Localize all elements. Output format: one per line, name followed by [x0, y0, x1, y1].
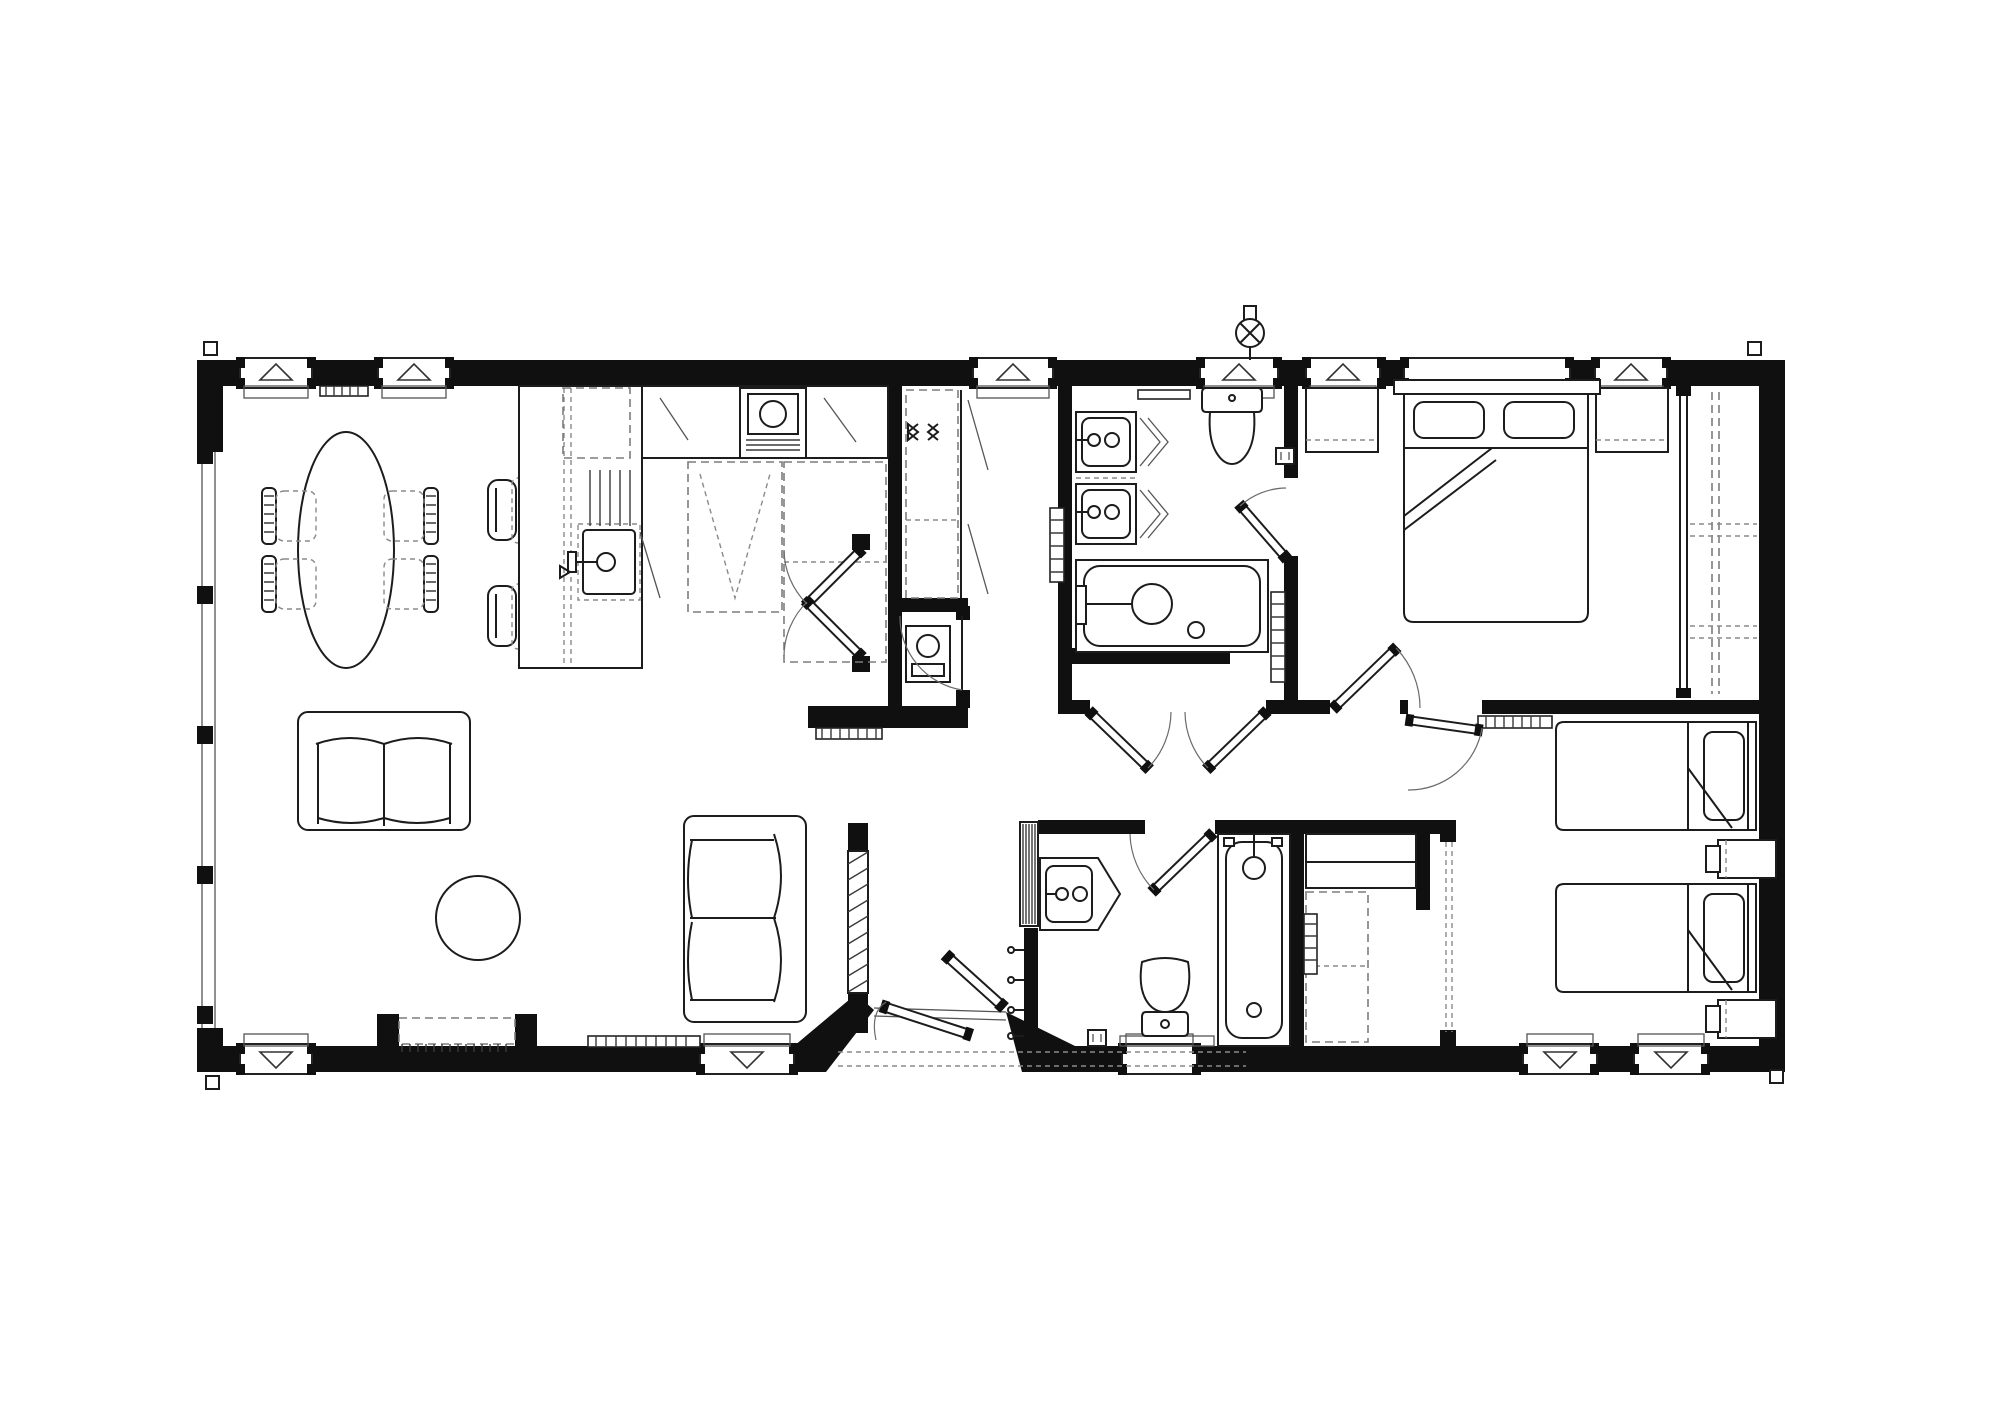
- wall-bottom: [537, 1046, 700, 1072]
- window-cap: [789, 1064, 798, 1075]
- wall-bottom: [377, 1046, 537, 1072]
- window-frame: [1595, 358, 1667, 388]
- wall-top: [1278, 360, 1306, 386]
- window-cap: [445, 357, 454, 368]
- window-frame: [240, 358, 312, 388]
- towel-rail: [1138, 390, 1190, 399]
- window-cap: [969, 357, 978, 368]
- floor-plan-drawing: [0, 0, 2000, 1414]
- window-frame: [240, 1044, 312, 1074]
- pillow: [1504, 402, 1574, 438]
- radiator: [320, 386, 368, 396]
- window-cap: [1519, 1064, 1528, 1075]
- single-bed: [1556, 884, 1756, 992]
- window-frame: [1200, 358, 1278, 388]
- wall-bottom: [1708, 1046, 1785, 1072]
- sofa-two-seat-north: [298, 712, 470, 830]
- towel-radiator-body: [1050, 508, 1064, 582]
- feature-partition: [848, 851, 868, 993]
- window-cap: [307, 357, 316, 368]
- cooker-oven: [740, 388, 806, 458]
- towel-radiator: [1304, 914, 1317, 974]
- window-frame: [973, 358, 1053, 388]
- downpipe-icon: [204, 342, 217, 355]
- shaver-socket: [1276, 448, 1294, 464]
- pillow: [1414, 402, 1484, 438]
- wall-storage-stub: [1416, 834, 1430, 910]
- window-cap: [696, 1064, 705, 1075]
- window-cap: [236, 357, 245, 368]
- wall-master-south: [1290, 700, 1330, 714]
- window-frame: [1122, 1044, 1197, 1074]
- tap-head: [597, 553, 615, 571]
- headboard: [1394, 380, 1600, 394]
- window-cap: [1662, 357, 1671, 368]
- coffee-table: [436, 876, 520, 960]
- window-cap: [1196, 357, 1205, 368]
- dining-table: [298, 432, 394, 668]
- wall-corridor-south: [1215, 820, 1446, 834]
- downpipe-icon: [206, 1076, 219, 1089]
- wall-left-top: [197, 360, 223, 452]
- wall-master-south: [1482, 700, 1759, 714]
- window-frame: [1634, 1044, 1708, 1074]
- wall-bathroom-east: [1284, 556, 1298, 714]
- wall-kitchen-east: [888, 386, 902, 727]
- shaver-socket: [1088, 1030, 1106, 1046]
- mullion: [197, 866, 213, 884]
- door-hinge-block: [1405, 714, 1415, 727]
- window-cap: [1591, 357, 1600, 368]
- sliding-door-post: [1440, 820, 1456, 842]
- track-end: [1676, 688, 1691, 698]
- feature-wall-cap: [848, 823, 868, 851]
- wall-showerroom-east: [1290, 834, 1304, 1046]
- wall-hall-south-stub: [808, 706, 968, 728]
- cabinet-front: [1706, 846, 1720, 872]
- wall-top: [450, 360, 973, 386]
- bedside-cabinet: [1706, 840, 1776, 878]
- towel-radiator: [1050, 508, 1064, 582]
- pillow: [1704, 894, 1744, 982]
- sliding-door-post: [1440, 1030, 1456, 1046]
- feature-wall-cap: [848, 993, 868, 1033]
- shower-screen: [1020, 822, 1038, 926]
- downpipe-icon: [1770, 1070, 1783, 1083]
- window-cap: [1590, 1043, 1599, 1054]
- window-cap: [1400, 357, 1409, 368]
- wall-corridor-south: [1038, 820, 1145, 834]
- shower-head: [1132, 584, 1172, 624]
- floor-plan-page: [0, 0, 2000, 1414]
- towel-radiator-body: [1304, 914, 1317, 974]
- bath-tap: [1224, 838, 1234, 846]
- cooker-body: [740, 388, 806, 458]
- window-cap: [307, 1064, 316, 1075]
- window-frame: [1306, 358, 1380, 388]
- wall-bottom: [312, 1046, 377, 1072]
- bath-mixer-plate: [1076, 586, 1086, 624]
- cabinet-front: [1706, 1006, 1720, 1032]
- window-cap: [1273, 357, 1282, 368]
- bath: [1076, 560, 1268, 652]
- wall-bottom: [1197, 1046, 1523, 1072]
- wall-top: [312, 360, 378, 386]
- bedside-table: [1306, 388, 1378, 452]
- towel-radiator: [1271, 592, 1285, 682]
- wall-right: [1759, 360, 1785, 1072]
- window-frame: [378, 358, 450, 388]
- wall-coat-hooks: [1024, 928, 1038, 1046]
- window-cap: [1701, 1043, 1710, 1054]
- wall-bottom: [197, 1046, 240, 1072]
- socket-plate: [1276, 448, 1294, 464]
- mullion: [197, 586, 213, 604]
- shower-head: [1243, 857, 1265, 879]
- bath-tap: [1272, 838, 1282, 846]
- window-cap: [374, 357, 383, 368]
- toilet-cistern: [1142, 1012, 1188, 1036]
- window-cap: [1302, 357, 1311, 368]
- bedside-cabinet: [1706, 1000, 1776, 1038]
- bedside-table-top: [1306, 388, 1378, 452]
- wall-top: [1053, 360, 1200, 386]
- toilet-bowl: [1141, 958, 1190, 1012]
- double-bed: [1394, 380, 1600, 622]
- track-end: [1676, 386, 1691, 396]
- window-cap: [1565, 357, 1574, 368]
- window-cap: [1048, 357, 1057, 368]
- window-frame: [1523, 1044, 1597, 1074]
- mullion: [197, 446, 213, 464]
- radiator: [588, 1036, 700, 1047]
- window-cap: [236, 1064, 245, 1075]
- light-bracket: [1244, 306, 1256, 320]
- bedside-table-top: [1596, 388, 1668, 452]
- wall-bottom: [1597, 1046, 1634, 1072]
- cupboard-door-post: [956, 690, 970, 708]
- hall-door-post: [1072, 700, 1090, 714]
- pillow: [1704, 732, 1744, 820]
- window-cap: [1377, 357, 1386, 368]
- mullion: [197, 1006, 213, 1024]
- bath-with-shower: [1218, 834, 1290, 1046]
- window-cap: [1701, 1064, 1710, 1075]
- window-cap: [1630, 1064, 1639, 1075]
- downpipe-icon: [1748, 342, 1761, 355]
- wall-master-south: [1400, 700, 1408, 714]
- kitchen-island: [519, 386, 642, 668]
- sofa-two-seat-east: [684, 816, 806, 1022]
- window-frame: [700, 1044, 794, 1074]
- socket-plate: [1088, 1030, 1106, 1046]
- mullion: [197, 726, 213, 744]
- bedside-table: [1596, 388, 1668, 452]
- wall-bottom: [1075, 1046, 1122, 1072]
- window-cap: [1590, 1064, 1599, 1075]
- radiator: [1478, 716, 1552, 728]
- single-bed: [1556, 722, 1756, 830]
- tap-handle: [568, 552, 576, 572]
